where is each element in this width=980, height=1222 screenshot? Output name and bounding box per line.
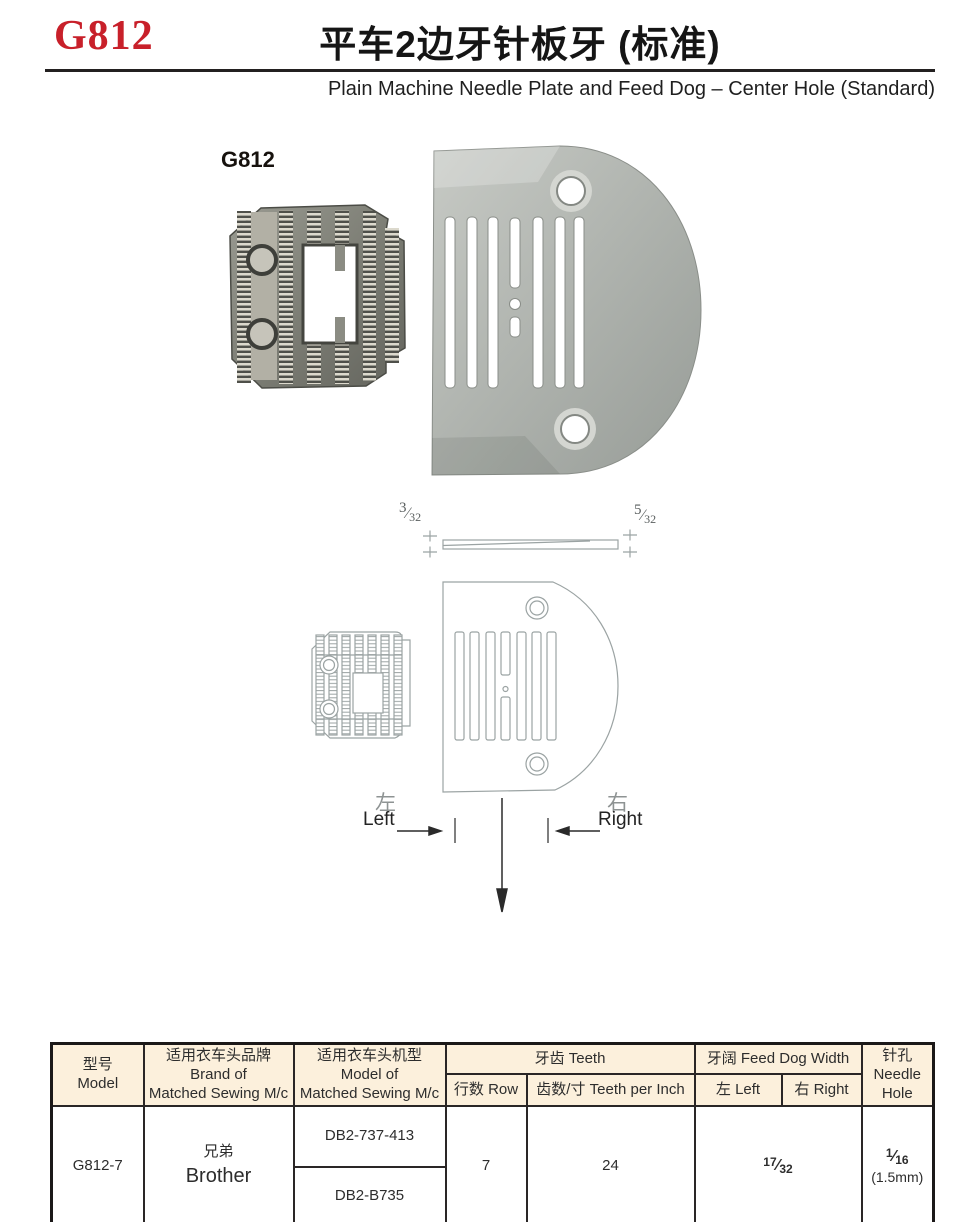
col-header-machine-zh: 适用衣车头机型: [298, 1047, 442, 1066]
col-header-teeth-per-inch: 齿数/寸 Teeth per Inch: [527, 1074, 695, 1106]
col-header-machine-model: 适用衣车头机型 Model of Matched Sewing M/c: [294, 1044, 446, 1107]
cell-brand-zh: 兄弟: [148, 1143, 290, 1162]
cell-needle-hole-fraction: 1⁄16: [866, 1146, 930, 1168]
cell-machine-models: DB2-737-413 DB2-B735: [294, 1106, 446, 1222]
col-header-needle-hole-en2: Hole: [866, 1085, 930, 1104]
page-title-chinese: 平车2边牙针板牙 (标准): [170, 14, 870, 68]
cell-teeth-per-inch: 24: [527, 1106, 695, 1222]
col-header-brand-en2: Matched Sewing M/c: [148, 1085, 290, 1104]
col-header-row: 行数 Row: [446, 1074, 527, 1106]
col-header-feed-dog-width: 牙阔 Feed Dog Width: [695, 1044, 862, 1074]
page-model-code: G812: [54, 12, 154, 60]
catalog-page: G812 平车2边牙针板牙 (标准) Plain Machine Needle …: [0, 0, 980, 1222]
needle-plate-photo: [420, 140, 705, 480]
col-header-left: 左 Left: [695, 1074, 782, 1106]
col-header-brand: 适用衣车头品牌 Brand of Matched Sewing M/c: [144, 1044, 294, 1107]
col-header-model-zh: 型号: [56, 1056, 140, 1075]
col-header-right: 右 Right: [782, 1074, 862, 1106]
cell-brand: 兄弟 Brother: [144, 1106, 294, 1222]
col-header-brand-en1: Brand of: [148, 1066, 290, 1085]
col-header-model-en: Model: [56, 1075, 140, 1094]
cell-model: G812-7: [52, 1106, 144, 1222]
col-header-needle-hole: 针孔 Needle Hole: [862, 1044, 934, 1107]
col-header-needle-hole-en1: Needle: [866, 1066, 930, 1085]
cell-teeth-rows: 7: [446, 1106, 527, 1222]
machine-model-2: DB2-B735: [295, 1166, 445, 1222]
machine-model-1: DB2-737-413: [295, 1107, 445, 1166]
col-header-machine-en2: Matched Sewing M/c: [298, 1085, 442, 1104]
col-header-brand-zh: 适用衣车头品牌: [148, 1047, 290, 1066]
table-row: G812-7 兄弟 Brother DB2-737-413 DB2-B735 7…: [52, 1106, 934, 1222]
side-view-drawing: [405, 520, 655, 562]
cell-needle-hole-mm: (1.5mm): [866, 1169, 930, 1187]
col-header-model: 型号 Model: [52, 1044, 144, 1107]
cell-feed-dog-width: 17⁄32: [695, 1106, 862, 1222]
cell-needle-hole: 1⁄16 (1.5mm): [862, 1106, 934, 1222]
col-header-teeth: 牙齿 Teeth: [446, 1044, 695, 1074]
page-title-english: Plain Machine Needle Plate and Feed Dog …: [45, 78, 935, 101]
top-view-drawing: [300, 578, 630, 798]
direction-arrows: [355, 785, 655, 920]
col-header-needle-hole-zh: 针孔: [866, 1047, 930, 1066]
feed-dog-photo: [215, 198, 415, 393]
cell-brand-en: Brother: [148, 1164, 290, 1189]
col-header-machine-en1: Model of: [298, 1066, 442, 1085]
spec-table: 型号 Model 适用衣车头品牌 Brand of Matched Sewing…: [50, 1042, 935, 1222]
photo-model-label: G812: [221, 147, 275, 173]
header-divider: [45, 69, 935, 72]
